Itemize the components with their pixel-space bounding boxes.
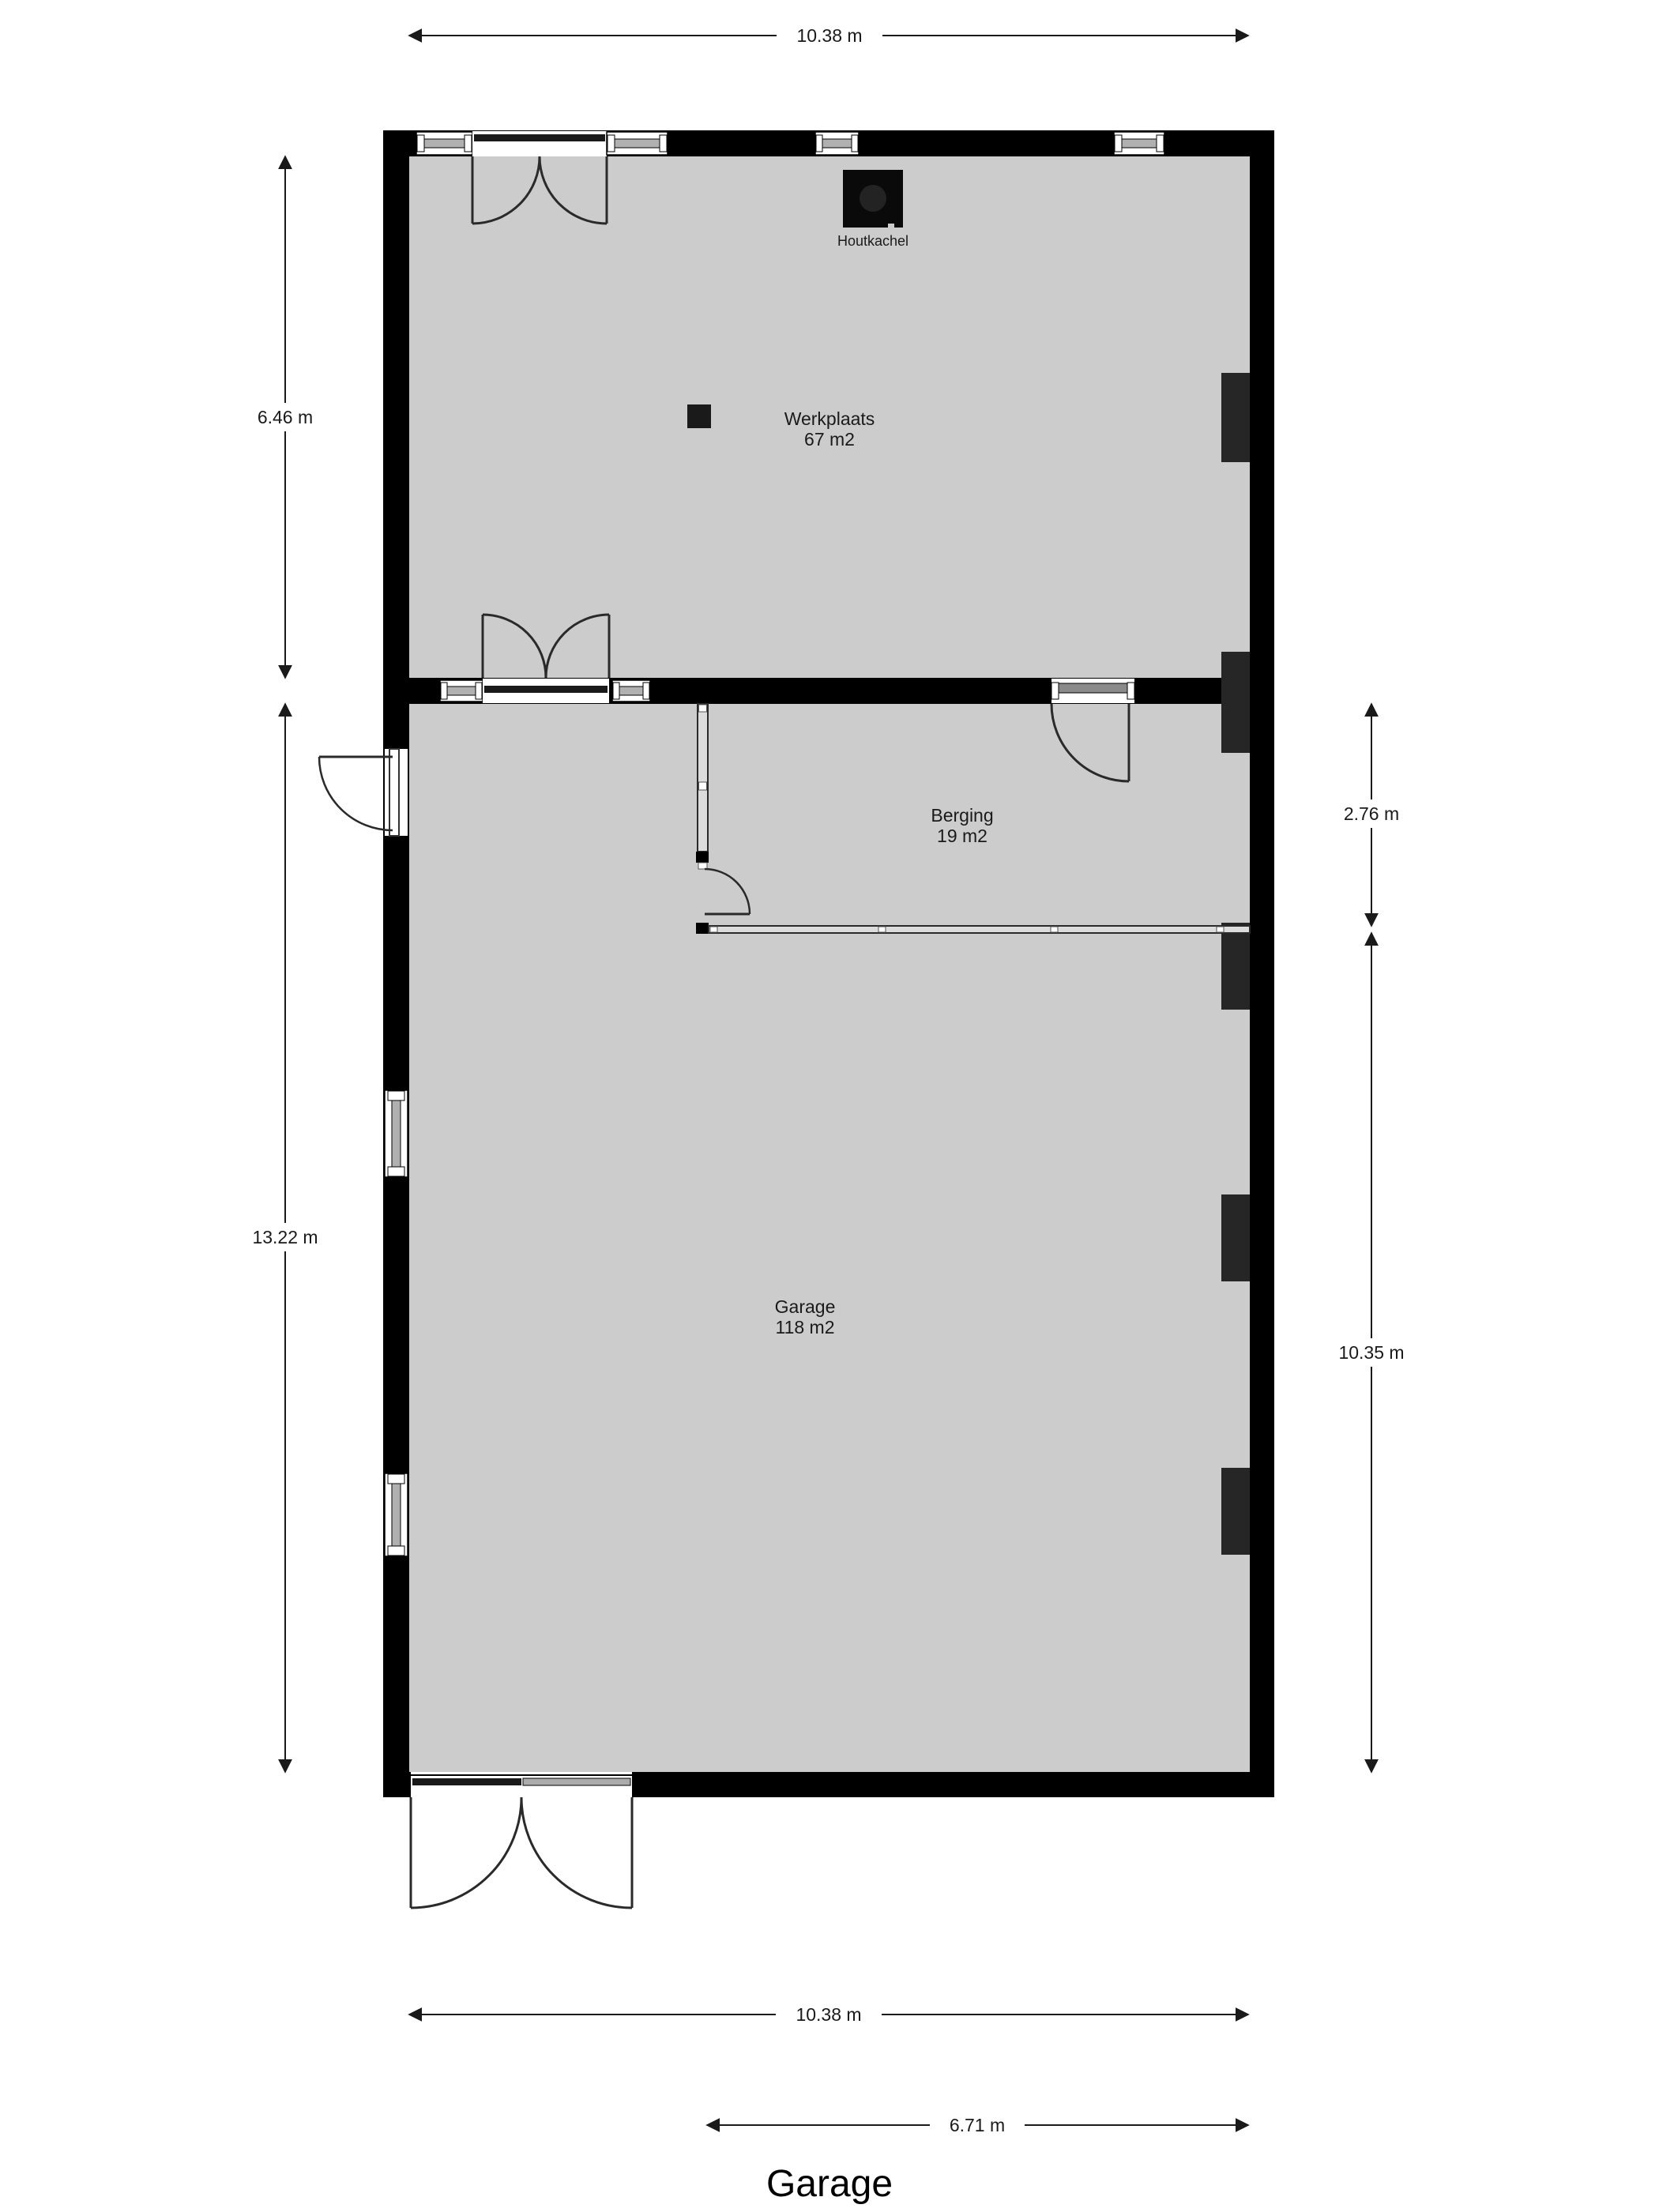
window-left-b: [385, 1473, 408, 1556]
houtkachel-stove: [843, 170, 903, 228]
window-middle-b: [612, 680, 650, 702]
room-area-garage: 118 m2: [775, 1317, 834, 1337]
dim-right-lower: 10.35 m: [1319, 933, 1424, 1772]
berging-partition-horizontal: [709, 926, 1250, 933]
dim-left-lower-value: 13.22 m: [252, 1227, 318, 1247]
dim-right-lower-value: 10.35 m: [1338, 1342, 1404, 1363]
dim-right-upper-value: 2.76 m: [1344, 803, 1399, 824]
dim-bottom-inner-value: 6.71 m: [950, 2115, 1005, 2135]
stove-label: Houtkachel: [837, 233, 908, 249]
berging-room-label: Berging 19 m2: [931, 805, 993, 846]
window-top-a: [416, 132, 472, 155]
dim-left-lower: 13.22 m: [232, 704, 338, 1772]
window-top-b: [607, 132, 668, 155]
pillar: [1221, 923, 1250, 1010]
dim-top: 10.38 m: [409, 21, 1248, 50]
door-left-exterior: [319, 749, 408, 836]
werkplaats-column: [687, 404, 711, 428]
dim-top-value: 10.38 m: [796, 25, 862, 46]
window-middle-a: [440, 680, 483, 702]
room-name-werkplaats: Werkplaats: [784, 408, 875, 429]
dim-bottom-value: 10.38 m: [796, 2004, 861, 2025]
door-garage-double: [411, 1772, 632, 1908]
dim-left-upper-value: 6.46 m: [258, 407, 313, 427]
room-name-garage: Garage: [775, 1296, 836, 1317]
floor-area: [409, 156, 1250, 1772]
pillar: [1221, 1194, 1250, 1281]
top-left-corner: [383, 130, 416, 156]
room-area-werkplaats: 67 m2: [804, 429, 855, 450]
dim-bottom: 10.38 m: [409, 2000, 1248, 2029]
dim-right-upper: 2.76 m: [1324, 704, 1419, 926]
room-name-berging: Berging: [931, 805, 993, 826]
window-left-a: [385, 1090, 408, 1177]
pillar: [1221, 652, 1250, 753]
pillar: [1221, 1468, 1250, 1555]
dim-bottom-inner: 6.71 m: [707, 2111, 1248, 2139]
room-area-berging: 19 m2: [937, 826, 987, 846]
dim-left-upper: 6.46 m: [238, 156, 333, 678]
right-wall: [1250, 130, 1274, 1797]
pillar: [1221, 373, 1250, 462]
garage-room-label: Garage 118 m2: [775, 1296, 836, 1337]
floor-plan: Houtkachel Werkplaats 67 m2 Berging 19 m…: [0, 0, 1659, 2212]
window-top-d: [1114, 132, 1164, 155]
window-top-c: [815, 132, 859, 155]
page-title: Garage: [766, 2163, 893, 2205]
